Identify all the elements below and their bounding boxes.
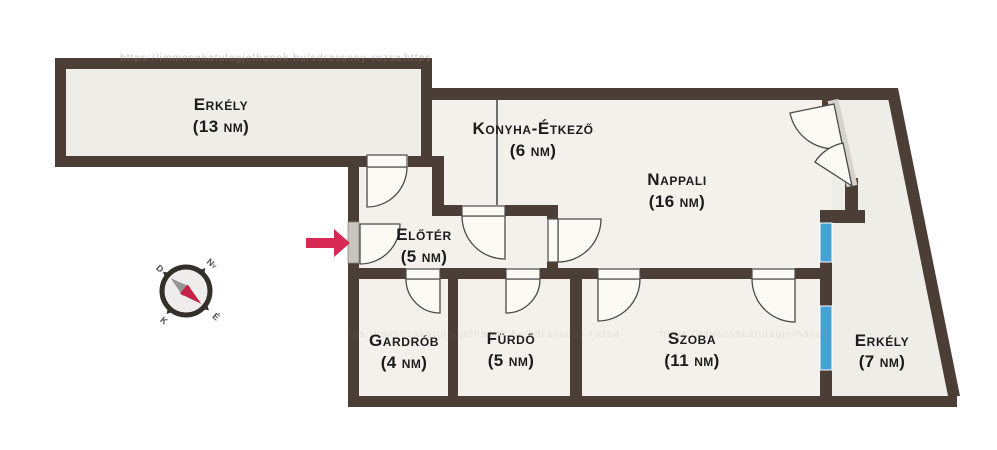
- room-area-szoba: (11 nm): [664, 351, 719, 370]
- door-leaf: [406, 269, 440, 279]
- wall: [348, 268, 406, 279]
- door-leaf: [752, 269, 795, 279]
- door-leaf: [598, 269, 640, 279]
- compass-label-east: K: [158, 315, 170, 327]
- floor-plan-canvas: É D K Ny Erkély (13 nm) Konyha-Étkező (6…: [0, 0, 997, 450]
- floor-plan: É D K Ny Erkély (13 nm) Konyha-Étkező (6…: [0, 0, 997, 450]
- entrance-arrow-icon: [306, 229, 350, 257]
- compass-icon: É D K Ny: [144, 249, 229, 334]
- room-label-konyha: Konyha-Étkező: [472, 119, 593, 138]
- entrance-door-leaf: [348, 222, 359, 263]
- room-label-erkely-13: Erkély: [194, 95, 249, 114]
- wall: [640, 268, 752, 279]
- wall: [421, 58, 432, 167]
- compass-label-west: Ny: [205, 256, 219, 270]
- wall: [55, 58, 66, 167]
- room-area-erkely-13: (13 nm): [193, 117, 249, 136]
- wall: [440, 268, 506, 279]
- wall: [820, 210, 865, 223]
- wall: [432, 205, 462, 216]
- wall: [820, 262, 832, 306]
- door-leaf: [367, 155, 407, 167]
- watermark-text: https://immosakatulagjelhanok.hu/sdracso…: [120, 53, 402, 64]
- watermark-text: https://immosakatulagjelhanok.hu/sdracso…: [404, 53, 686, 64]
- room-area-nappali: (16 nm): [649, 192, 705, 211]
- room-area-erkely-7: (7 nm): [859, 352, 906, 371]
- room-area-konyha: (6 nm): [510, 141, 557, 160]
- room-label-eloter: Előtér: [396, 225, 452, 244]
- wall: [348, 156, 359, 222]
- watermark: https://immosakatulagjelhanok.hu/sdracso…: [120, 53, 686, 64]
- room-area-furdo: (5 nm): [488, 351, 535, 370]
- room-label-erkely-7: Erkély: [855, 331, 910, 350]
- room-area-gardrob: (4 nm): [381, 353, 428, 372]
- door-leaf: [506, 269, 540, 279]
- room-label-nappali: Nappali: [647, 170, 707, 189]
- door-leaf: [462, 206, 505, 216]
- door-leaf: [548, 219, 558, 262]
- watermark-text: https://immosakatulagjelhanok.hu/sdracso…: [338, 329, 620, 340]
- wall: [348, 396, 957, 407]
- room-area-eloter: (5 nm): [401, 247, 448, 266]
- compass-label-north: É: [210, 311, 221, 323]
- window: [820, 223, 832, 262]
- wall: [55, 156, 367, 167]
- wall: [540, 268, 598, 279]
- wall: [547, 205, 558, 219]
- wall: [820, 370, 832, 407]
